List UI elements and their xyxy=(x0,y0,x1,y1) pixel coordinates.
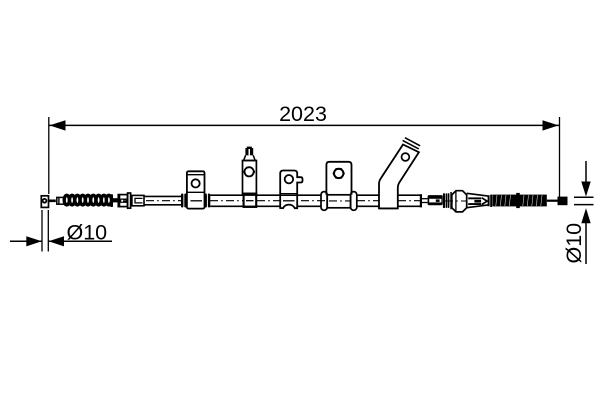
svg-text:Ø10: Ø10 xyxy=(67,221,108,245)
svg-text:2023: 2023 xyxy=(279,102,327,126)
svg-text:Ø10: Ø10 xyxy=(562,223,586,264)
